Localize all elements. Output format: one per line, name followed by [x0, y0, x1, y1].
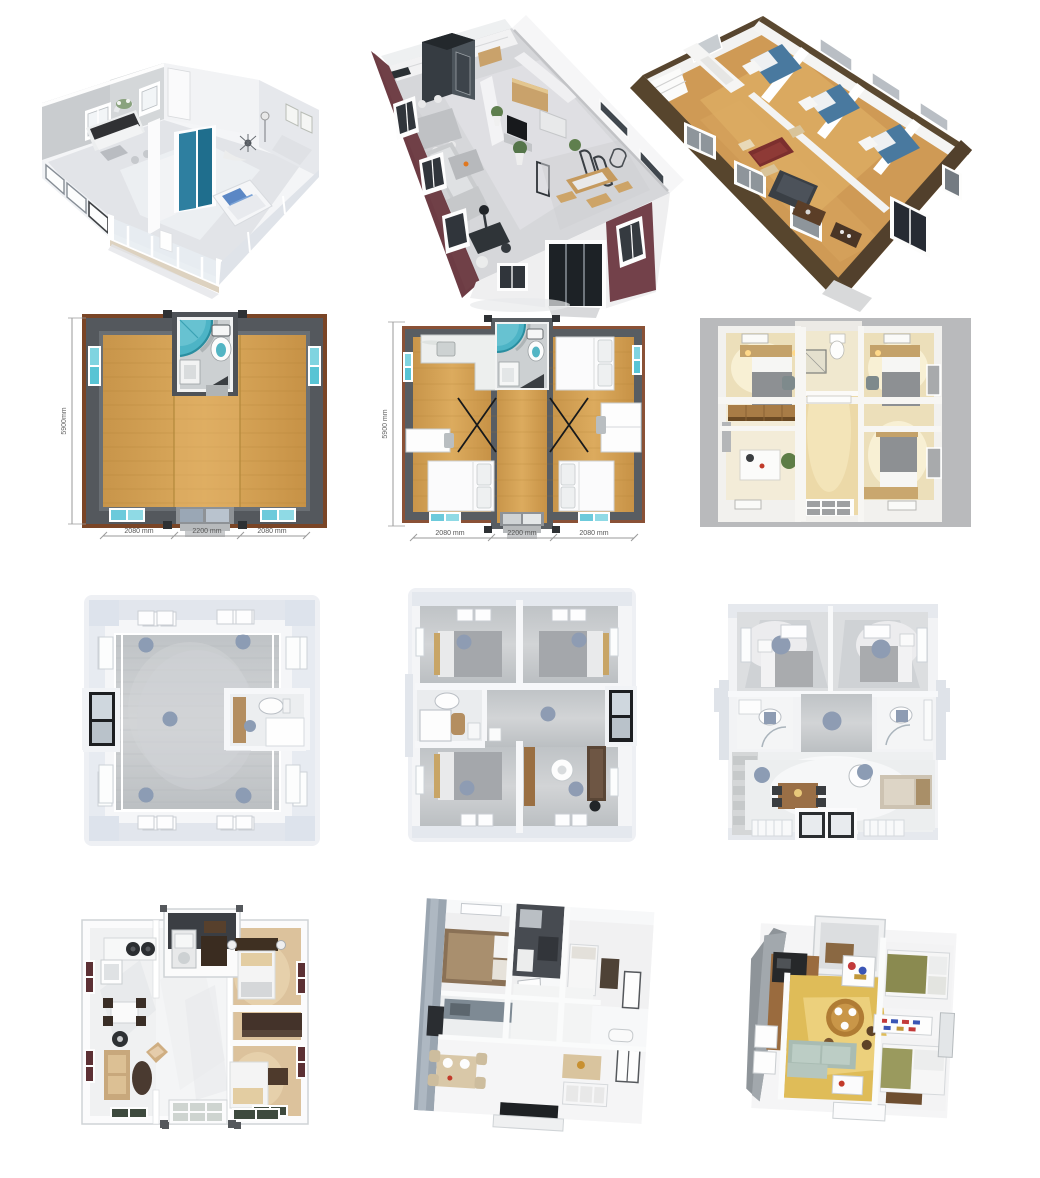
- svg-text:2080 mm: 2080 mm: [257, 528, 286, 535]
- svg-text:2080 mm: 2080 mm: [579, 530, 608, 537]
- svg-text:2200 mm: 2200 mm: [507, 530, 536, 537]
- svg-text:5900 mm: 5900 mm: [382, 409, 389, 438]
- svg-text:5900mm: 5900mm: [61, 407, 68, 434]
- svg-text:2080 mm: 2080 mm: [124, 528, 153, 535]
- svg-text:2200 mm: 2200 mm: [192, 528, 221, 535]
- svg-text:2080 mm: 2080 mm: [435, 530, 464, 537]
